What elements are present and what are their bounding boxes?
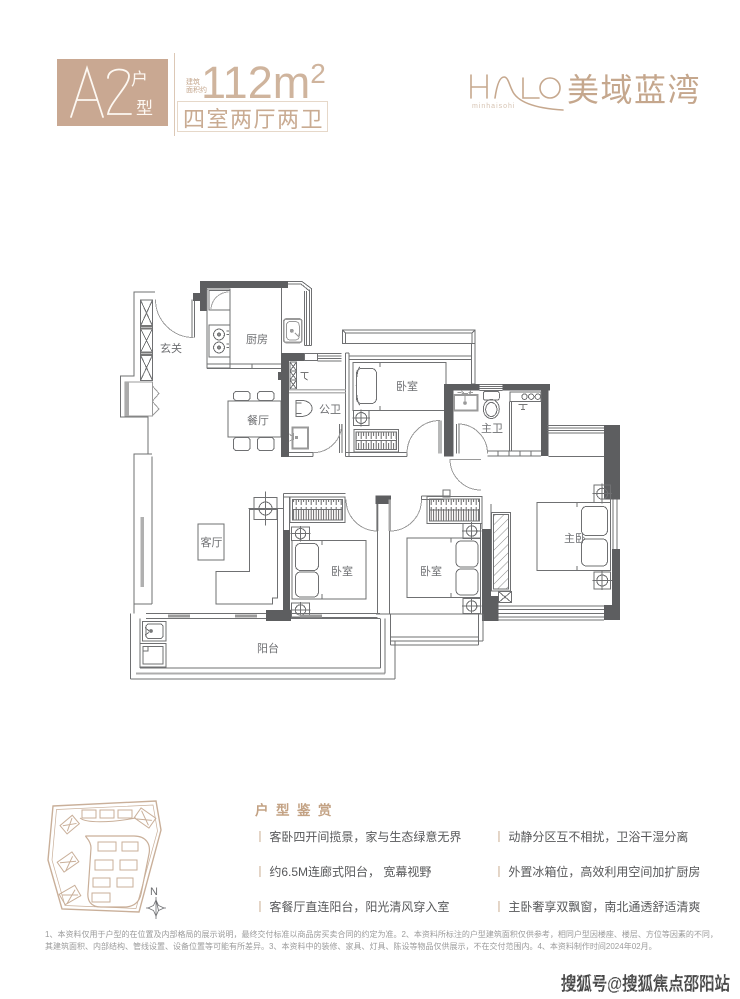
svg-text:卧室: 卧室 xyxy=(331,564,353,578)
svg-text:阳台: 阳台 xyxy=(257,641,279,655)
svg-text:餐厅: 餐厅 xyxy=(247,413,269,427)
svg-text:主卧: 主卧 xyxy=(564,532,586,545)
svg-text:卧室: 卧室 xyxy=(420,564,442,578)
svg-text:主卫: 主卫 xyxy=(481,422,503,435)
svg-text:公卫: 公卫 xyxy=(319,404,341,416)
svg-text:客厅: 客厅 xyxy=(201,535,223,549)
svg-text:厨房: 厨房 xyxy=(246,333,268,346)
svg-text:玄关: 玄关 xyxy=(160,341,182,355)
svg-text:N: N xyxy=(150,886,158,898)
svg-text:卧室: 卧室 xyxy=(396,379,418,393)
